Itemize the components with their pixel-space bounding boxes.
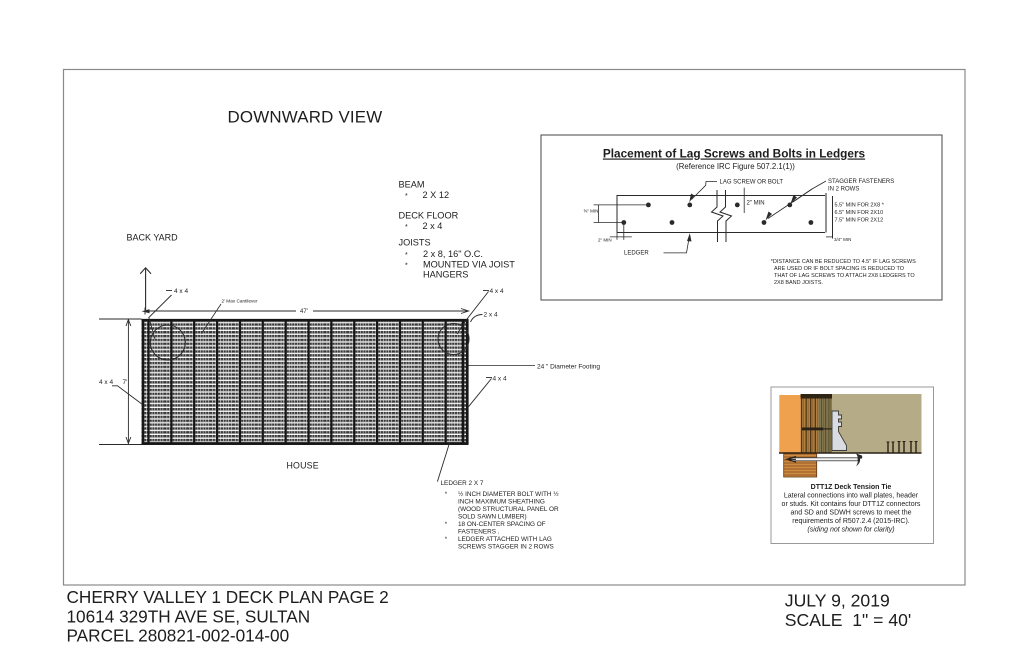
svg-text:4 x 4: 4 x 4 — [490, 288, 504, 295]
svg-text:2 X 12: 2 X 12 — [423, 190, 450, 200]
svg-text:7.5" MIN FOR 2X12: 7.5" MIN FOR 2X12 — [835, 218, 884, 224]
svg-text:and SD and SDWH screws to meet: and SD and SDWH screws to meet the — [791, 510, 912, 517]
svg-text:requirements of R507.2.4 (2015: requirements of R507.2.4 (2015-IRC). — [792, 518, 910, 525]
svg-text:4 x 4: 4 x 4 — [174, 288, 188, 295]
svg-text:2' Max Cantilever: 2' Max Cantilever — [222, 299, 259, 304]
svg-text:6.5" MIN FOR 2X10: 6.5" MIN FOR 2X10 — [835, 210, 884, 216]
svg-text:THAT OF LAG SCREWS TO ATTACH 2: THAT OF LAG SCREWS TO ATTACH 2X8 LEDGERS… — [774, 273, 915, 279]
svg-text:JOISTS: JOISTS — [399, 238, 431, 248]
svg-text:DTT1Z Deck Tension Tie: DTT1Z Deck Tension Tie — [811, 484, 892, 491]
svg-text:(WOOD STRUCTURAL PANEL OR: (WOOD STRUCTURAL PANEL OR — [458, 506, 559, 513]
svg-text:*: * — [445, 492, 448, 498]
svg-text:7': 7' — [123, 379, 128, 386]
svg-text:*: * — [405, 262, 408, 269]
svg-text:JULY 9, 2019: JULY 9, 2019 — [785, 590, 890, 610]
svg-text:2X8 BAND JOISTS.: 2X8 BAND JOISTS. — [774, 280, 823, 286]
svg-text:*: * — [405, 252, 408, 259]
svg-text:2 x 4: 2 x 4 — [423, 221, 443, 231]
svg-text:SCREWS STAGGER IN 2 ROWS: SCREWS STAGGER IN 2 ROWS — [458, 544, 554, 551]
svg-text:ARE USED OR IF BOLT SPACING IS: ARE USED OR IF BOLT SPACING IS REDUCED T… — [774, 266, 905, 272]
svg-text:3/4" MIN: 3/4" MIN — [834, 237, 851, 242]
svg-text:*: * — [445, 522, 448, 528]
svg-text:HOUSE: HOUSE — [287, 461, 319, 471]
svg-text:BACK YARD: BACK YARD — [127, 233, 179, 243]
svg-text:BEAM: BEAM — [399, 180, 425, 190]
svg-text:LEDGER 2 X 7: LEDGER 2 X 7 — [441, 480, 484, 487]
svg-text:½ INCH DIAMETER BOLT WITH ½: ½ INCH DIAMETER BOLT WITH ½ — [458, 490, 559, 498]
svg-text:2 x 8, 16" O.C.: 2 x 8, 16" O.C. — [423, 249, 483, 259]
svg-text:*DISTANCE CAN BE REDUCED TO 4.: *DISTANCE CAN BE REDUCED TO 4.5" IF LAG … — [771, 259, 916, 265]
svg-text:DOWNWARD VIEW: DOWNWARD VIEW — [228, 108, 383, 127]
svg-text:10614 329TH AVE SE, SULTAN: 10614 329TH AVE SE, SULTAN — [67, 606, 311, 626]
svg-text:Placement of Lag Screws and Bo: Placement of Lag Screws and Bolts in Led… — [603, 147, 866, 161]
svg-text:(siding not shown for clarity): (siding not shown for clarity) — [807, 527, 894, 534]
svg-text:47': 47' — [300, 309, 308, 315]
svg-text:MOUNTED VIA JOIST: MOUNTED VIA JOIST — [423, 259, 515, 269]
svg-text:LEDGER: LEDGER — [624, 251, 649, 257]
svg-text:18 ON-CENTER SPACING OF: 18 ON-CENTER SPACING OF — [458, 521, 546, 528]
svg-text:*: * — [405, 224, 408, 231]
svg-text:4 x 4: 4 x 4 — [493, 376, 507, 383]
svg-text:SCALE 1" = 40': SCALE 1" = 40' — [785, 610, 911, 630]
svg-text:CHERRY VALLEY 1 DECK PLAN PAGE: CHERRY VALLEY 1 DECK PLAN PAGE 2 — [67, 587, 389, 607]
svg-text:(Reference IRC Figure 507.2.1(: (Reference IRC Figure 507.2.1(1)) — [676, 162, 795, 171]
svg-text:5.5" MIN FOR 2X8 *: 5.5" MIN FOR 2X8 * — [835, 203, 885, 209]
svg-text:2 x 4: 2 x 4 — [484, 312, 498, 319]
svg-text:*: * — [405, 193, 408, 200]
svg-text:*: * — [445, 537, 448, 543]
svg-text:IN 2 ROWS: IN 2 ROWS — [828, 187, 859, 193]
svg-text:24 " Diameter Footing: 24 " Diameter Footing — [537, 364, 600, 371]
svg-text:STAGGER FASTENERS: STAGGER FASTENERS — [828, 179, 894, 185]
svg-text:4 x 4: 4 x 4 — [99, 379, 113, 386]
svg-text:PARCEL 280821-002-014-00: PARCEL 280821-002-014-00 — [67, 626, 290, 646]
svg-text:LAG SCREW OR BOLT: LAG SCREW OR BOLT — [720, 180, 784, 186]
svg-text:2" MIN: 2" MIN — [598, 238, 612, 243]
svg-text:DECK FLOOR: DECK FLOOR — [399, 211, 459, 221]
svg-text:or studs. Kit contains four DT: or studs. Kit contains four DTT1Z connec… — [782, 501, 921, 508]
svg-text:LEDGER ATTACHED WITH LAG: LEDGER ATTACHED WITH LAG — [458, 536, 552, 543]
svg-text:⅝" MIN: ⅝" MIN — [584, 209, 599, 214]
svg-text:2" MIN: 2" MIN — [747, 201, 765, 207]
svg-text:FASTENERS .: FASTENERS . — [458, 529, 500, 536]
svg-text:HANGERS: HANGERS — [423, 270, 468, 280]
svg-text:Lateral connections into wall: Lateral connections into wall plates, he… — [784, 493, 919, 500]
svg-text:SOLD SAWN LUMBER): SOLD SAWN LUMBER) — [458, 514, 527, 521]
svg-text:INCH MAXIMUM SHEATHING: INCH MAXIMUM SHEATHING — [458, 499, 545, 506]
